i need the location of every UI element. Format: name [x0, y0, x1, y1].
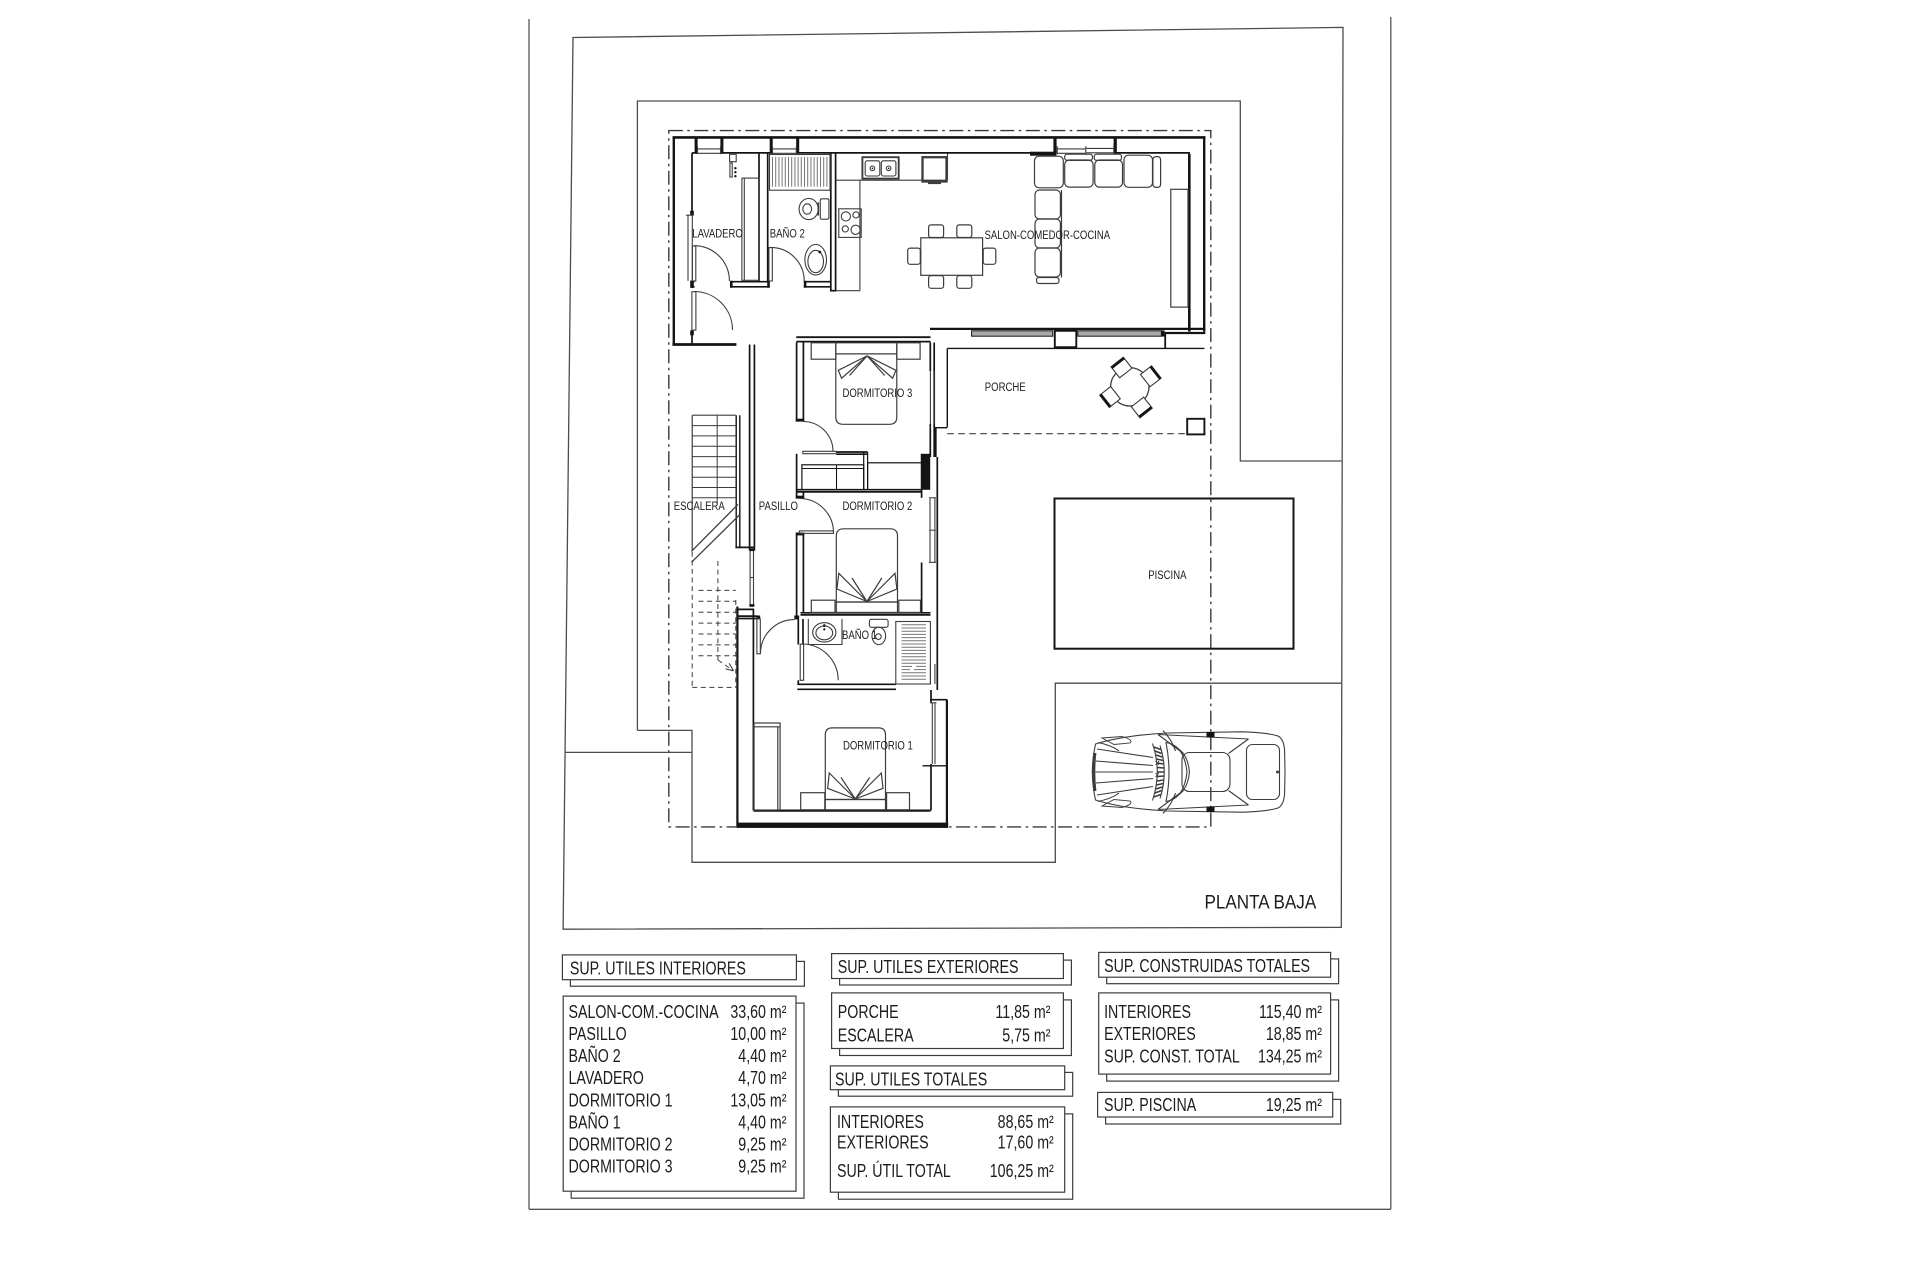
- svg-text:19,25 m²: 19,25 m²: [1266, 1095, 1323, 1115]
- svg-text:PASILLO: PASILLO: [568, 1025, 626, 1045]
- svg-text:DORMITORIO 3: DORMITORIO 3: [568, 1157, 672, 1177]
- svg-text:EXTERIORES: EXTERIORES: [837, 1133, 929, 1153]
- svg-text:10,00 m²: 10,00 m²: [730, 1025, 787, 1045]
- svg-text:4,70 m²: 4,70 m²: [738, 1069, 787, 1089]
- svg-text:BAÑO 1: BAÑO 1: [568, 1111, 620, 1133]
- svg-text:DORMITORIO 3: DORMITORIO 3: [842, 387, 912, 400]
- svg-text:115,40 m²: 115,40 m²: [1259, 1002, 1322, 1022]
- svg-text:9,25 m²: 9,25 m²: [738, 1135, 787, 1155]
- svg-text:134,25 m²: 134,25 m²: [1258, 1047, 1323, 1067]
- svg-text:SUP. UTILES TOTALES: SUP. UTILES TOTALES: [835, 1070, 987, 1090]
- svg-text:EXTERIORES: EXTERIORES: [1104, 1025, 1196, 1045]
- svg-text:4,40 m²: 4,40 m²: [738, 1113, 787, 1133]
- svg-text:SALON-COMEDOR-COCINA: SALON-COMEDOR-COCINA: [984, 229, 1110, 242]
- svg-text:SUP. UTILES EXTERIORES: SUP. UTILES EXTERIORES: [838, 958, 1019, 978]
- svg-text:5,75 m²: 5,75 m²: [1002, 1026, 1051, 1046]
- svg-text:LAVADERO: LAVADERO: [568, 1069, 643, 1089]
- svg-text:PORCHE: PORCHE: [985, 381, 1026, 394]
- svg-text:SUP. CONST. TOTAL: SUP. CONST. TOTAL: [1104, 1047, 1240, 1067]
- svg-text:SUP. PISCINA: SUP. PISCINA: [1104, 1095, 1196, 1115]
- svg-text:13,05 m²: 13,05 m²: [730, 1091, 787, 1111]
- svg-text:PISCINA: PISCINA: [1148, 569, 1187, 582]
- svg-text:INTERIORES: INTERIORES: [1104, 1002, 1191, 1022]
- svg-text:DORMITORIO 2: DORMITORIO 2: [568, 1135, 672, 1155]
- svg-text:18,85 m²: 18,85 m²: [1266, 1025, 1323, 1045]
- svg-text:INTERIORES: INTERIORES: [837, 1112, 924, 1132]
- svg-text:ESCALERA: ESCALERA: [838, 1026, 914, 1046]
- svg-text:88,65 m²: 88,65 m²: [998, 1112, 1055, 1132]
- svg-text:106,25 m²: 106,25 m²: [990, 1162, 1055, 1182]
- svg-text:33,60 m²: 33,60 m²: [730, 1002, 787, 1022]
- svg-text:BAÑO 2: BAÑO 2: [568, 1044, 620, 1066]
- svg-text:11,85 m²: 11,85 m²: [995, 1002, 1051, 1022]
- svg-text:DORMITORIO 2: DORMITORIO 2: [842, 500, 912, 513]
- svg-text:ESCALERA: ESCALERA: [674, 500, 726, 513]
- svg-text:DORMITORIO 1: DORMITORIO 1: [843, 740, 913, 753]
- svg-text:4,40 m²: 4,40 m²: [738, 1047, 787, 1067]
- svg-text:SUP. CONSTRUIDAS TOTALES: SUP. CONSTRUIDAS TOTALES: [1104, 956, 1310, 976]
- svg-text:SUP. ÚTIL TOTAL: SUP. ÚTIL TOTAL: [837, 1161, 951, 1182]
- svg-text:SUP. UTILES INTERIORES: SUP. UTILES INTERIORES: [570, 959, 746, 979]
- svg-text:PLANTA BAJA: PLANTA BAJA: [1204, 892, 1317, 913]
- svg-text:BAÑO 2: BAÑO 2: [770, 226, 805, 240]
- svg-text:PASILLO: PASILLO: [759, 500, 798, 513]
- svg-text:9,25 m²: 9,25 m²: [738, 1157, 787, 1177]
- svg-text:BAÑO 1: BAÑO 1: [842, 628, 877, 642]
- svg-text:DORMITORIO 1: DORMITORIO 1: [568, 1091, 672, 1111]
- svg-text:PORCHE: PORCHE: [838, 1002, 899, 1022]
- svg-text:17,60 m²: 17,60 m²: [998, 1133, 1055, 1153]
- svg-text:SALON-COM.-COCINA: SALON-COM.-COCINA: [568, 1002, 718, 1022]
- svg-text:LAVADERO: LAVADERO: [692, 227, 743, 240]
